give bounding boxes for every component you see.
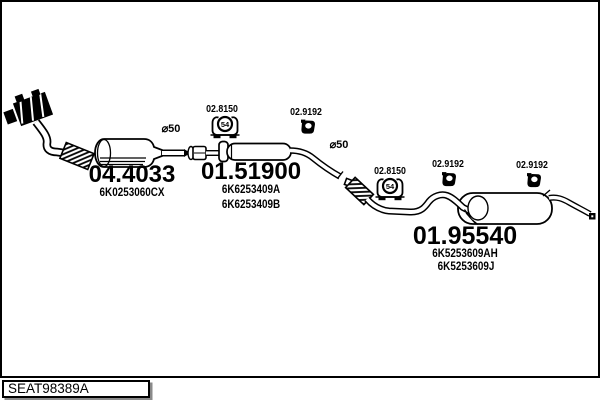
clamp-icon (527, 173, 541, 187)
pipe-diameter-label: ⌀50 (146, 124, 196, 135)
rubber-mount-icon (211, 117, 240, 138)
rubber-mount-icon (376, 179, 405, 200)
clamp-fitting-label: 02.9192 (422, 160, 475, 170)
exhaust-parts-diagram-page: 54 (0, 0, 600, 400)
oe-ref-catalytic-converter: 6K0253060CX (72, 188, 192, 199)
mount-fitting-label: 02.8150 (364, 167, 417, 177)
oe-ref-rear-silencer-b: 6K5253609J (406, 262, 526, 273)
tailpipe-end-bracket (589, 213, 596, 220)
tail-pipe (549, 198, 590, 214)
clamp-fitting-label: 02.9192 (506, 161, 559, 171)
mount-fitting-label: 02.8150 (196, 105, 249, 115)
drawing-code-text: SEAT98389A (8, 381, 89, 396)
part-number-rear-silencer: 01.95540 (395, 225, 535, 247)
drawing-code-box: SEAT98389A (2, 380, 150, 398)
pipe-diameter-label: ⌀50 (314, 140, 364, 151)
part-number-centre-silencer: 01.51900 (181, 161, 321, 183)
clamp-icon (301, 120, 315, 134)
oe-ref-rear-silencer-a: 6K5253609AH (405, 249, 525, 260)
catalyst-outlet-pipe (162, 149, 191, 157)
front-flange (0, 86, 53, 130)
front-down-pipe (36, 122, 64, 153)
clamp-fitting-label: 02.9192 (280, 108, 333, 118)
clamp-icon (442, 172, 456, 186)
oe-ref-centre-silencer-a: 6K6253409A (191, 185, 311, 196)
oe-ref-centre-silencer-b: 6K6253409B (191, 200, 311, 211)
